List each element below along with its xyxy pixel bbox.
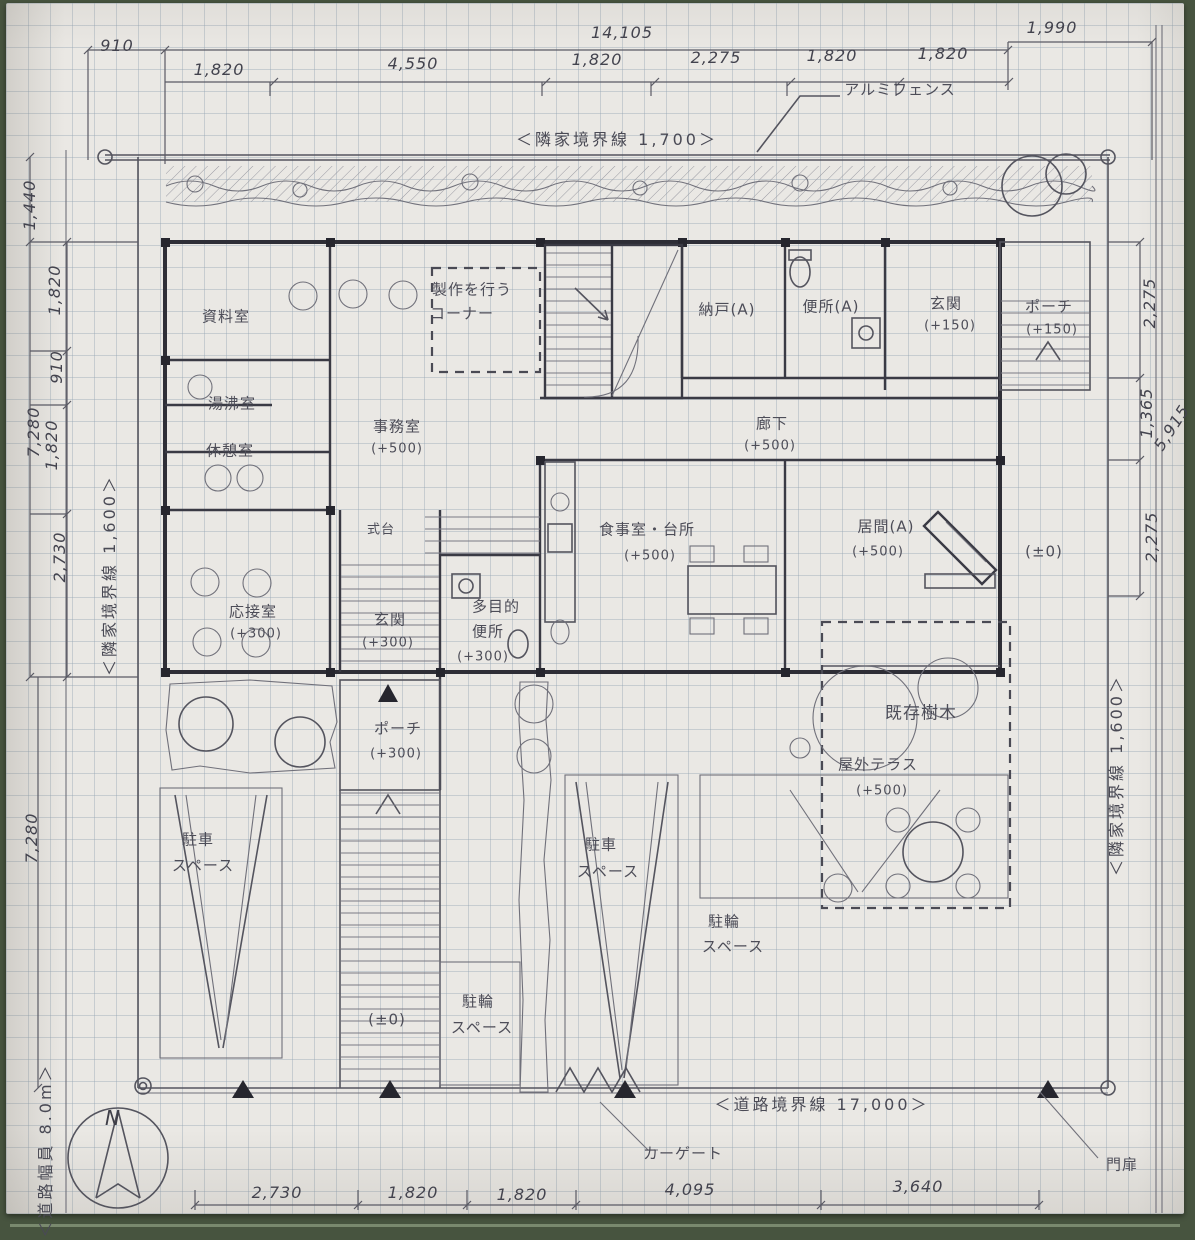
room-genkan-a-level: (+150) bbox=[924, 320, 976, 333]
dim-14105: 14,105 bbox=[591, 25, 653, 41]
dim-top-seg-5: 1,820 bbox=[918, 46, 969, 62]
floor-plan-drawing bbox=[0, 0, 1195, 1240]
dim-bottom-seg-0: 2,730 bbox=[252, 1185, 303, 1201]
work-corner-line1: 製作を行う bbox=[432, 283, 512, 298]
room-osetsu: 応接室 bbox=[229, 605, 277, 620]
shikidai-label: 式台 bbox=[367, 524, 395, 537]
living-room-diagonal bbox=[924, 512, 996, 588]
room-osetsu-level: (+300) bbox=[230, 628, 282, 641]
dim-bottom-seg-4: 3,640 bbox=[893, 1179, 944, 1195]
room-genkan-b-level: (+300) bbox=[362, 637, 414, 650]
existing-trees-label: 既存樹木 bbox=[885, 706, 957, 723]
terrace-label: 屋外テラス bbox=[838, 758, 918, 773]
room-ima: 居間(A) bbox=[858, 520, 915, 535]
dim-top-seg-3: 2,275 bbox=[691, 50, 742, 66]
road-width-label: ＜道路幅員 8.0m＞ bbox=[38, 1062, 54, 1237]
floor-plan-photo: 910 14,105 1,990 1,820 4,550 1,820 2,275… bbox=[0, 0, 1195, 1240]
room-roka: 廊下 bbox=[756, 417, 788, 432]
parking-left-line2: スペース bbox=[172, 859, 234, 874]
room-nando: 納戸(A) bbox=[699, 303, 756, 318]
room-tamokuteki-line2: 便所 bbox=[472, 625, 504, 640]
parking-left bbox=[160, 788, 282, 1058]
room-jimu: 事務室 bbox=[373, 420, 421, 435]
room-porch-a-level: (+150) bbox=[1026, 324, 1078, 337]
parking-mid-line2: スペース bbox=[577, 865, 639, 880]
neighbor-boundary-left: ＜隣家境界線 1,600＞ bbox=[102, 474, 118, 676]
neighbor-boundary-right: ＜隣家境界線 1,600＞ bbox=[1109, 674, 1125, 876]
room-shokudo-level: (+500) bbox=[624, 550, 676, 563]
room-jimu-level: (+500) bbox=[371, 443, 423, 456]
dimension-lines-left bbox=[26, 153, 138, 1092]
dim-1440: 1,440 bbox=[22, 180, 38, 231]
room-tamokuteki-line1: 多目的 bbox=[472, 600, 520, 615]
dim-right-seg-2: 2,275 bbox=[1144, 512, 1160, 563]
dim-left-seg-1: 910 bbox=[49, 350, 65, 384]
parking-left-line1: 駐車 bbox=[182, 833, 214, 848]
room-benjo-a: 便所(A) bbox=[803, 300, 860, 315]
room-shiryo: 資料室 bbox=[202, 310, 250, 325]
dim-910: 910 bbox=[100, 38, 134, 54]
room-porch-b-level: (+300) bbox=[370, 748, 422, 761]
dim-left-seg-0: 1,820 bbox=[47, 265, 63, 316]
dim-7280-lower: 7,280 bbox=[24, 813, 40, 864]
car-gate-label: カーゲート bbox=[643, 1147, 723, 1162]
room-porch-a: ポーチ bbox=[1025, 300, 1073, 315]
multipurpose-toilet-fixtures bbox=[452, 574, 528, 658]
gate-label: 門扉 bbox=[1106, 1158, 1138, 1173]
planting-strip-top bbox=[166, 166, 1095, 206]
dim-top-seg-1: 4,550 bbox=[388, 56, 439, 72]
parking-middle bbox=[565, 775, 678, 1085]
room-porch-b: ポーチ bbox=[374, 722, 422, 737]
planting-strip-vertical bbox=[515, 682, 553, 1092]
dim-right-seg-0: 2,275 bbox=[1142, 278, 1158, 329]
work-corner-line2: コーナー bbox=[430, 307, 494, 322]
dim-top-seg-2: 1,820 bbox=[572, 52, 623, 68]
dim-bottom-seg-1: 1,820 bbox=[388, 1185, 439, 1201]
north-label: N bbox=[105, 1108, 121, 1128]
bicycle-right-line1: 駐輪 bbox=[708, 915, 740, 930]
bicycle-left-line2: スペース bbox=[451, 1021, 513, 1036]
room-roka-level: (+500) bbox=[744, 440, 796, 453]
room-genkan-a: 玄関 bbox=[930, 297, 962, 312]
dim-left-seg-2: 1,820 bbox=[44, 420, 60, 471]
fence-label: アルミフェンス bbox=[844, 83, 956, 98]
dim-right-seg-1: 1,365 bbox=[1139, 388, 1155, 439]
room-ima-level: (+500) bbox=[852, 546, 904, 559]
room-genkan-b: 玄関 bbox=[374, 613, 406, 628]
bicycle-right-line2: スペース bbox=[702, 940, 764, 955]
bicycle-right bbox=[700, 775, 1008, 898]
house-porch bbox=[1000, 242, 1090, 390]
room-yuwakashi: 湯沸室 bbox=[208, 397, 256, 412]
room-shokudo: 食事室・台所 bbox=[599, 523, 695, 538]
dim-left-seg-3: 2,730 bbox=[52, 532, 68, 583]
level-zero-right: (±0) bbox=[1025, 545, 1063, 560]
dim-7280-upper: 7,280 bbox=[26, 407, 42, 458]
stairs bbox=[545, 245, 682, 398]
bicycle-left-line1: 駐輪 bbox=[462, 995, 494, 1010]
terrace-level: (+500) bbox=[856, 785, 908, 798]
dim-top-seg-0: 1,820 bbox=[194, 62, 245, 78]
room-kyukei: 休憩室 bbox=[206, 444, 254, 459]
road-boundary-label: ＜道路境界線 17,000＞ bbox=[714, 1097, 929, 1113]
dim-top-seg-4: 1,820 bbox=[807, 48, 858, 64]
neighbor-boundary-top: ＜隣家境界線 1,700＞ bbox=[516, 132, 718, 148]
room-tamokuteki-level: (+300) bbox=[457, 651, 509, 664]
level-zero-left: (±0) bbox=[368, 1013, 406, 1028]
dim-bottom-seg-3: 4,095 bbox=[665, 1182, 716, 1198]
dim-bottom-seg-2: 1,820 bbox=[497, 1187, 548, 1203]
dim-1990: 1,990 bbox=[1027, 20, 1078, 36]
parking-mid-line1: 駐車 bbox=[585, 838, 617, 853]
planting-left bbox=[166, 680, 337, 773]
